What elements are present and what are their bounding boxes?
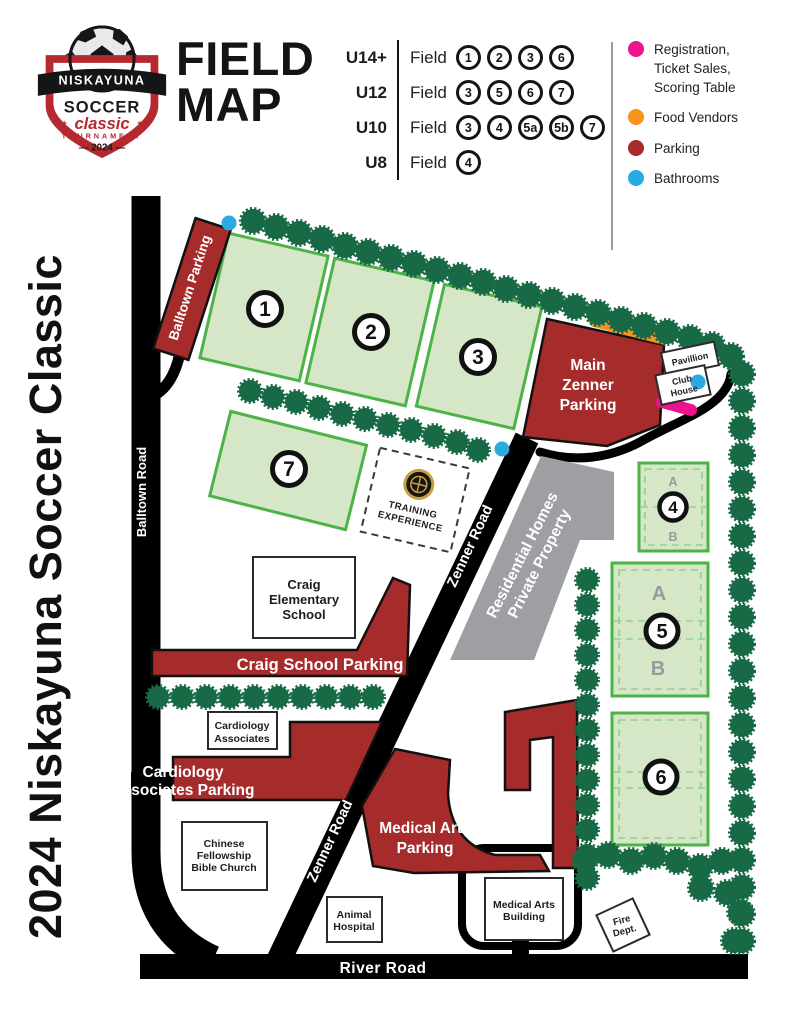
cardiology-label: Cardiology xyxy=(215,720,270,732)
svg-text:4: 4 xyxy=(668,498,678,517)
field-4b-label: B xyxy=(668,530,677,544)
medical-driveway-stub xyxy=(512,938,529,960)
field-map: Balltown Road River Road Zenner Road Zen… xyxy=(0,0,791,1023)
svg-text:6: 6 xyxy=(655,767,666,789)
field-4-marker: 4 xyxy=(660,494,687,521)
main-zenner-parking-label: Parking xyxy=(560,397,617,414)
cardiology-parking-label: Associates Parking xyxy=(111,782,254,799)
field-5-marker: 5 xyxy=(646,615,678,647)
svg-text:5: 5 xyxy=(656,621,667,643)
medical-parking-label: Medical Arts xyxy=(379,820,471,837)
bathroom-dot-icon xyxy=(495,442,510,457)
craig-school-label: Craig xyxy=(287,577,320,592)
medical-building-label: Medical Arts xyxy=(493,899,555,911)
svg-text:2: 2 xyxy=(365,321,377,344)
field-6-marker: 6 xyxy=(645,761,677,793)
medical-parking-lot-east xyxy=(505,700,578,868)
field-3-marker: 3 xyxy=(462,341,495,374)
craig-school-label: Elementary xyxy=(269,592,340,607)
church-label: Chinese xyxy=(204,838,245,850)
church-label: Fellowship xyxy=(197,850,251,862)
craig-school-parking-label: Craig School Parking xyxy=(237,656,404,674)
field-7-marker: 7 xyxy=(273,453,306,486)
svg-text:3: 3 xyxy=(472,346,484,369)
medical-parking-label: Parking xyxy=(397,840,454,857)
svg-text:7: 7 xyxy=(283,458,295,481)
field-5b-label: B xyxy=(651,658,665,680)
river-road xyxy=(140,954,748,979)
cardiology-label: Associates xyxy=(214,733,270,745)
animal-hospital-label: Animal xyxy=(336,909,371,921)
balltown-road-label: Balltown Road xyxy=(134,447,149,537)
river-road-label: River Road xyxy=(340,960,427,977)
main-zenner-parking-label: Main xyxy=(570,357,605,374)
cardiology-parking-label: Cardiology xyxy=(143,764,224,781)
medical-building-label: Building xyxy=(503,911,545,923)
field-2-marker: 2 xyxy=(355,316,388,349)
church-label: Bible Church xyxy=(191,862,256,874)
craig-school-label: School xyxy=(282,607,325,622)
bathroom-dot-icon xyxy=(222,216,237,231)
field-1-marker: 1 xyxy=(249,293,282,326)
field-5a-label: A xyxy=(652,583,666,605)
field-4a-label: A xyxy=(668,475,677,489)
main-zenner-parking-label: Zenner xyxy=(562,377,614,394)
svg-text:1: 1 xyxy=(259,298,271,321)
training-experience-area xyxy=(361,448,470,552)
animal-hospital-label: Hospital xyxy=(333,921,375,933)
